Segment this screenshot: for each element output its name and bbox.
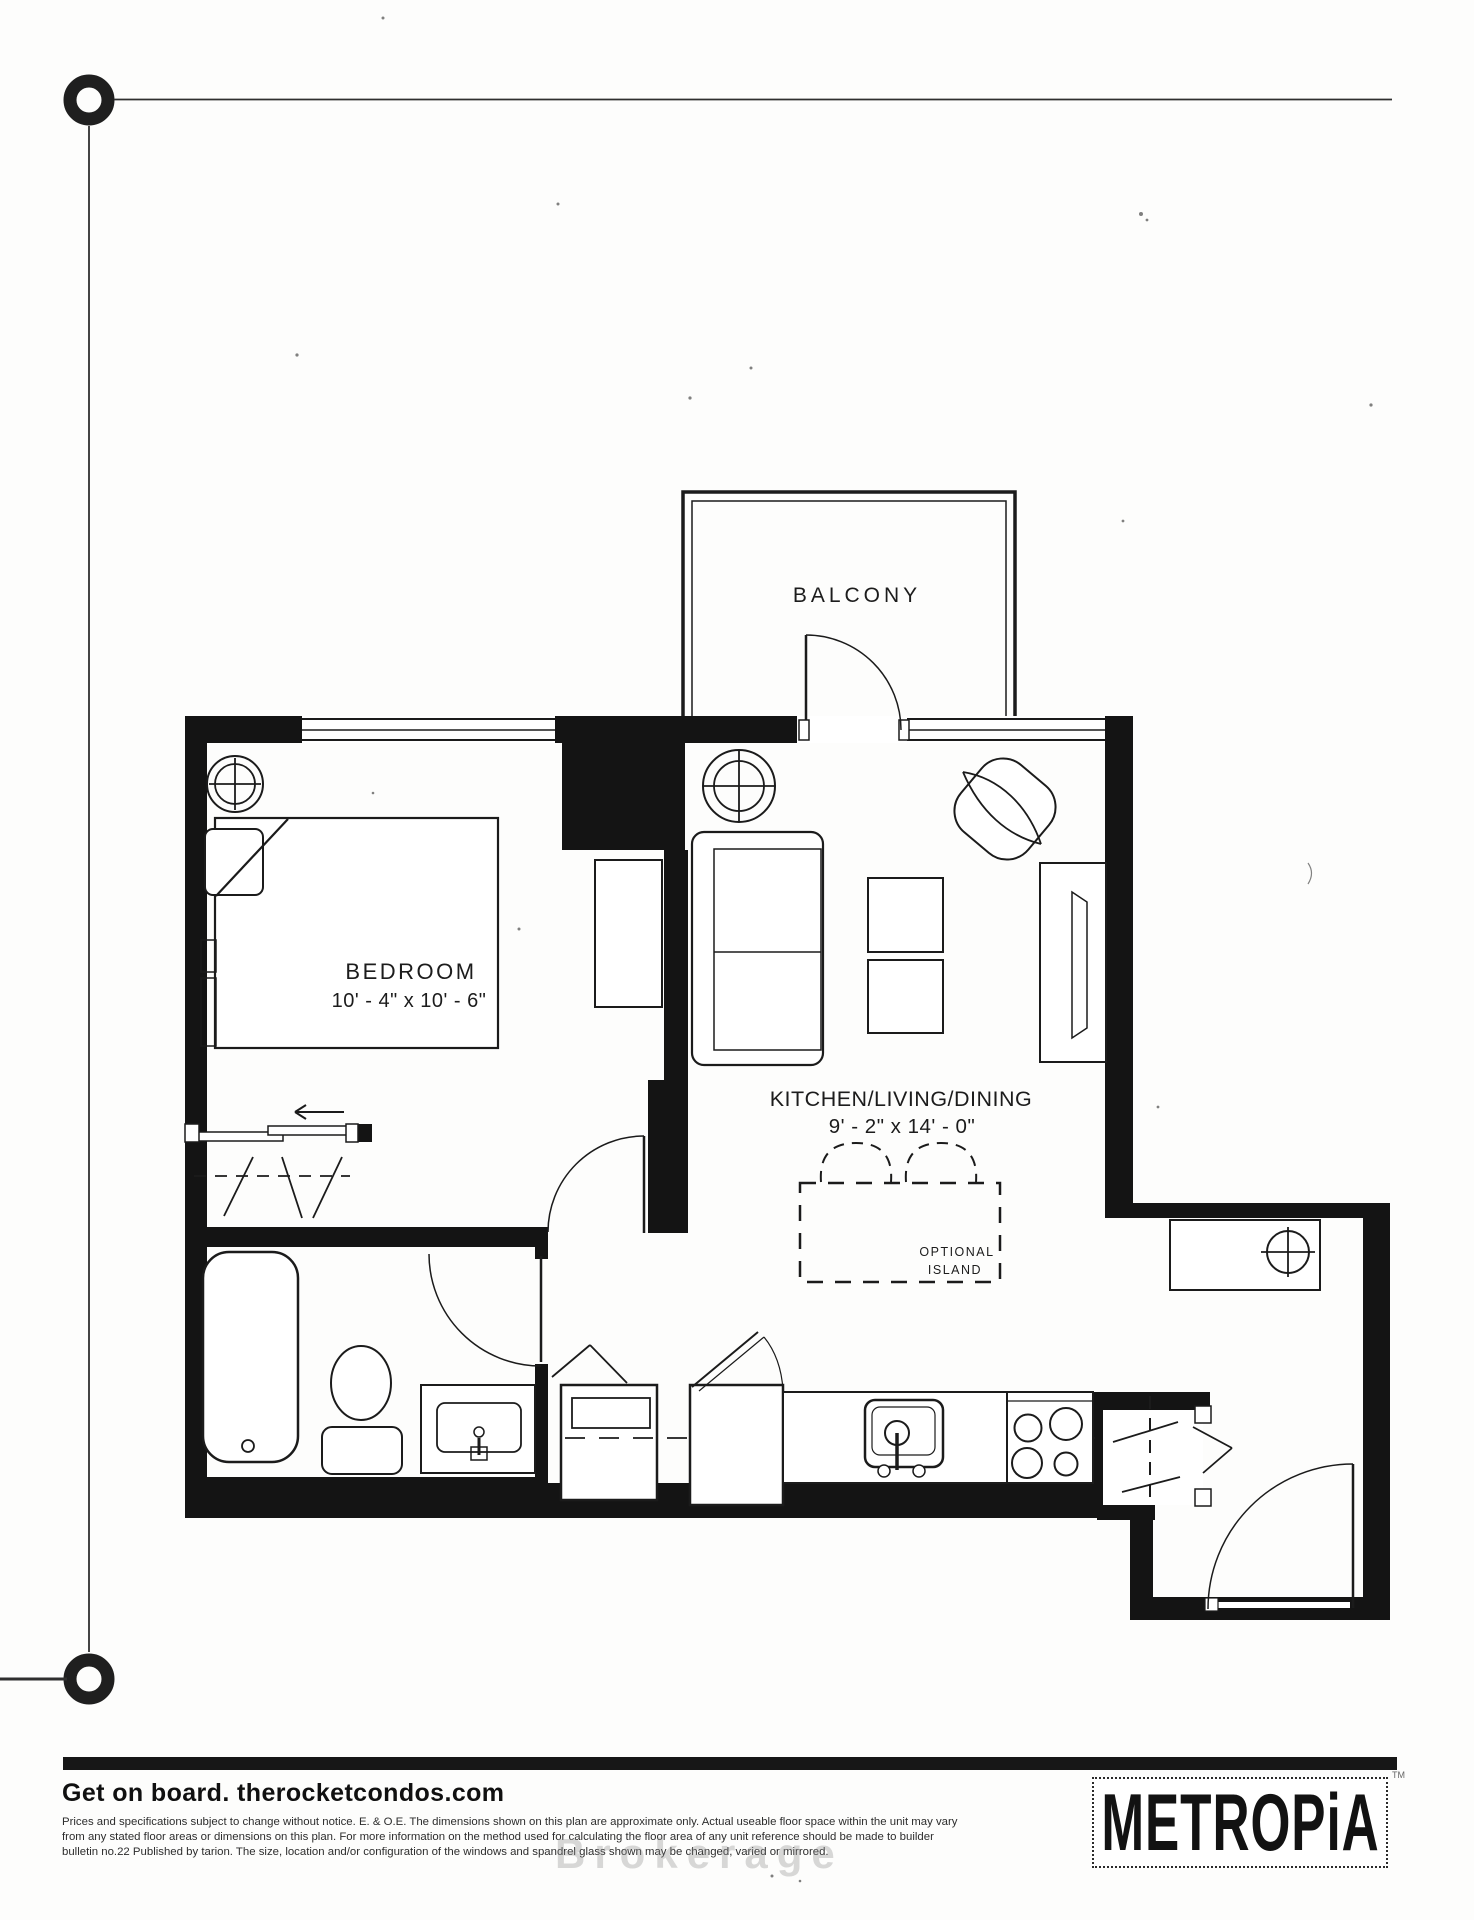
toilet-bowl (331, 1346, 391, 1420)
lounge-chair (943, 747, 1067, 871)
living-furniture (692, 747, 1106, 1065)
bathtub (203, 1252, 298, 1462)
utility-counter (1170, 1220, 1320, 1290)
kitchen-sink (865, 1400, 943, 1467)
bedroom-closet (185, 1105, 358, 1218)
stove (1007, 1392, 1093, 1483)
logo-trademark: TM (1392, 1770, 1405, 1780)
optional-island (800, 1143, 1000, 1282)
island-stool (821, 1143, 891, 1182)
toilet-tank (322, 1427, 402, 1474)
footer-tagline: Get on board. therocketcondos.com (62, 1779, 504, 1808)
linen-closet (552, 1345, 657, 1500)
island-label-line2: ISLAND (928, 1263, 982, 1277)
bedroom-label: BEDROOM (345, 959, 476, 984)
bedroom-door (548, 1136, 644, 1233)
island-stool (906, 1143, 976, 1182)
metropia-logo: METROPiA (1092, 1777, 1388, 1868)
coffee-table (868, 878, 943, 952)
bathroom-door (429, 1254, 541, 1366)
entry-closet (1103, 1396, 1232, 1506)
floor-plan-page: BALCONY BEDROOM 10' - 4" x 10' - 6" KITC… (0, 0, 1474, 1920)
kitchen-living-dining-label: KITCHEN/LIVING/DINING (770, 1087, 1033, 1111)
bathroom (203, 1252, 535, 1474)
bedroom-dimensions: 10' - 4" x 10' - 6" (332, 990, 487, 1012)
sofa (692, 832, 823, 1065)
registration-ring-top (70, 81, 108, 119)
pillow (205, 829, 263, 895)
disclaimer-line-1: Prices and specifications subject to cha… (62, 1815, 1147, 1830)
fridge (690, 1385, 783, 1505)
kitchen-living-dining-dimensions: 9' - 2" x 14' - 0" (829, 1115, 975, 1138)
island-label-line1: OPTIONAL (919, 1245, 994, 1259)
watermark: Brokerage (555, 1830, 844, 1878)
coffee-table (868, 960, 943, 1033)
balcony-label: BALCONY (793, 584, 921, 607)
floor-plan-drawing: BALCONY BEDROOM 10' - 4" x 10' - 6" KITC… (0, 0, 1474, 1920)
footer-divider-bar (63, 1757, 1397, 1770)
wardrobe (595, 860, 662, 1007)
registration-ring-bottom (70, 1660, 108, 1698)
metropia-logo-text: METROPiA (1101, 1776, 1379, 1869)
tv (1072, 892, 1087, 1038)
entry-door (1205, 1464, 1353, 1611)
